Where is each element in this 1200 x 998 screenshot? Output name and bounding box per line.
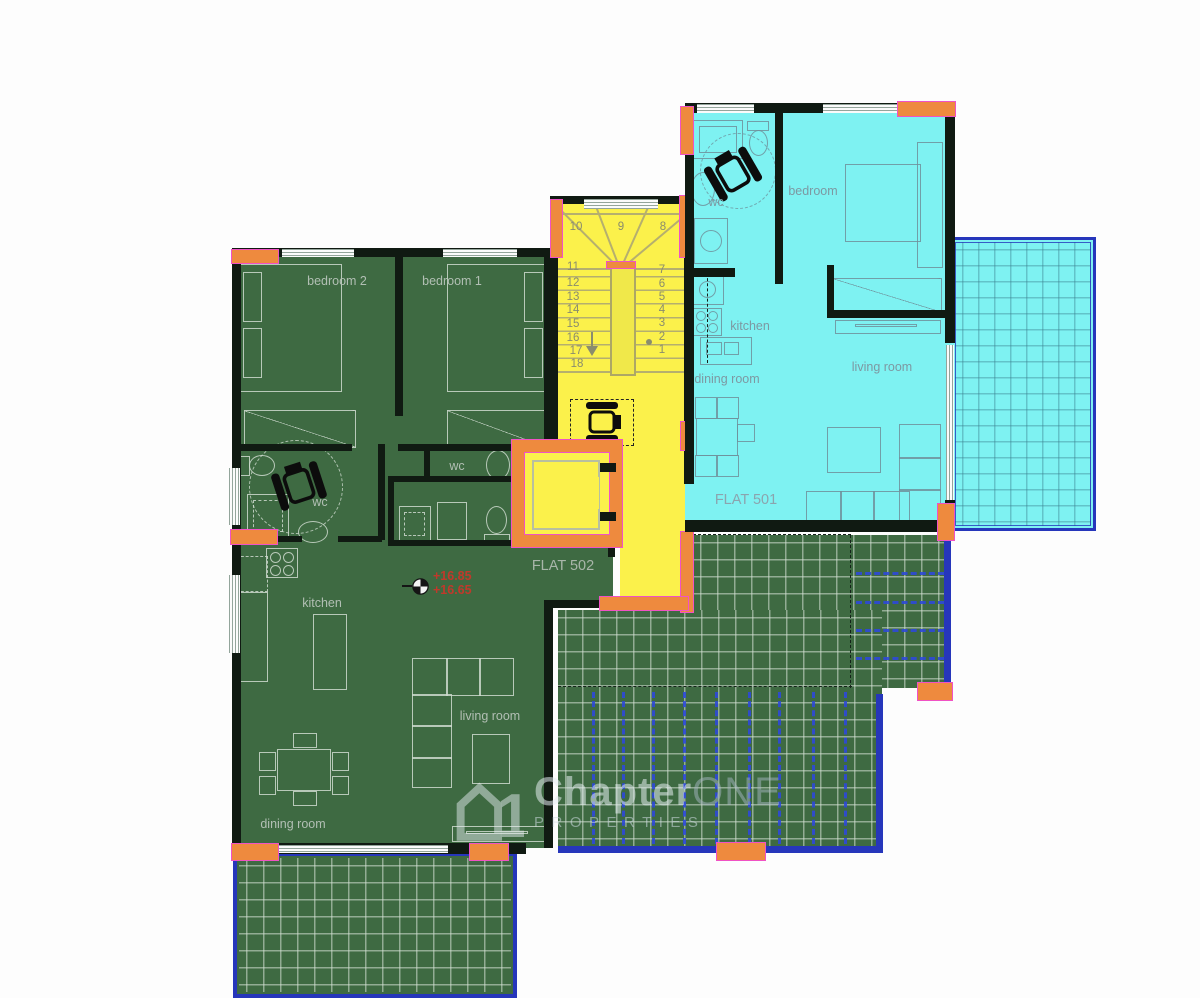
dining-chair	[259, 752, 276, 771]
room-label-bedroom2: bedroom 2	[307, 274, 367, 288]
stair-step-number: 5	[659, 291, 665, 303]
stair-step-number: 1	[659, 344, 665, 356]
closet	[833, 278, 942, 313]
stair-step-number: 2	[659, 331, 665, 343]
sofa-divider	[412, 725, 452, 727]
stair-step-number: 18	[571, 358, 584, 370]
bench	[835, 320, 941, 334]
shower-tray-inner	[404, 512, 425, 536]
dining-chair	[332, 752, 349, 771]
wall	[338, 536, 382, 542]
bed	[845, 164, 921, 242]
stair-step-number: 17	[570, 345, 583, 357]
core-lobby-area	[620, 443, 688, 605]
wall	[608, 547, 615, 557]
stair-step-number: 15	[567, 318, 580, 330]
bed-headboard	[917, 142, 943, 268]
wall	[232, 444, 352, 451]
room-label-kitchen-501: kitchen	[730, 319, 770, 333]
terrace-divider-dashed	[693, 534, 851, 535]
wall-accent-orange	[232, 844, 278, 860]
sofa-divider	[479, 658, 481, 696]
burner	[283, 552, 294, 563]
bed-pillow	[243, 272, 262, 322]
svg-text:1: 1	[497, 782, 524, 844]
watermark-brand-second: ONE	[692, 770, 782, 814]
stair-step-number: 16	[567, 332, 580, 344]
dining-table	[696, 418, 738, 456]
terrace-divider-dashed	[850, 535, 851, 688]
burner	[708, 323, 718, 333]
kitchen-partition-dashed	[707, 273, 708, 363]
wall	[232, 248, 241, 848]
wall	[398, 444, 511, 451]
terrace-tiles	[955, 242, 1091, 526]
dining-chair	[293, 733, 317, 748]
stair-step-number: 7	[659, 264, 665, 276]
sofa-divider	[412, 757, 452, 759]
pergola-line	[856, 657, 944, 660]
bed-pillow	[524, 272, 543, 322]
floor-plan: wc bedroom kitchen dining room living ro…	[0, 0, 1200, 998]
sink-bowl	[724, 342, 739, 355]
burner	[270, 552, 281, 563]
room-label-living-502: living room	[460, 709, 520, 723]
kitchen-island	[313, 614, 347, 690]
wall-accent-orange	[232, 250, 278, 263]
stair-step-number: 13	[567, 291, 580, 303]
wall-accent-orange	[938, 504, 954, 540]
window	[443, 249, 517, 257]
bed-pillow	[243, 328, 262, 378]
sofa-divider	[899, 489, 941, 491]
room-label-dining-501: dining room	[694, 372, 759, 386]
elevator-door-gap	[594, 477, 599, 509]
stair-railing	[610, 266, 636, 376]
sofa	[412, 658, 514, 696]
room-label-wc-502: wc	[312, 495, 327, 509]
room-label-bedroom-501: bedroom	[788, 184, 837, 198]
flat502-label: FLAT 502	[532, 558, 594, 574]
watermark-logo-icon: 1	[452, 772, 524, 844]
dining-chair	[332, 776, 349, 795]
wall	[378, 444, 385, 540]
dining-chair	[293, 791, 317, 806]
burner	[696, 323, 706, 333]
window	[697, 104, 754, 113]
dining-chair	[259, 776, 276, 795]
stair-line	[558, 213, 686, 215]
wall-accent-orange	[918, 683, 952, 700]
pergola-line	[856, 572, 944, 575]
room-label-wc-small-502: wc	[449, 459, 464, 473]
pergola-line	[856, 629, 944, 632]
elevator-car	[532, 460, 600, 530]
toilet-bowl	[486, 506, 507, 534]
burner	[270, 565, 281, 576]
level-value-lower: +16.65	[433, 583, 472, 597]
wall	[424, 444, 430, 480]
level-marker-icon	[412, 578, 429, 595]
stair-step-number: 9	[618, 221, 624, 233]
dining-chair	[717, 397, 739, 419]
pergola-line	[856, 601, 944, 604]
stair-start-dot	[646, 339, 652, 345]
sliding-window	[277, 845, 448, 853]
stair-railing-cap	[607, 262, 635, 268]
wall-accent-orange	[681, 107, 693, 154]
room-label-bedroom1: bedroom 1	[422, 274, 482, 288]
burner	[696, 311, 706, 321]
wall	[945, 103, 955, 343]
watermark-brand: ChapterONE	[534, 772, 782, 812]
level-value-upper: +16.85	[433, 569, 472, 583]
wall	[687, 268, 735, 277]
watermark-brand-first: Chapter	[534, 770, 692, 814]
dining-chair	[737, 424, 755, 442]
terrace-tiles	[239, 858, 511, 992]
sofa	[412, 694, 452, 788]
wall	[685, 103, 694, 484]
room-label-kitchen-502: kitchen	[302, 596, 342, 610]
stair-step-number: 8	[660, 221, 666, 233]
stair-step-number: 10	[570, 221, 583, 233]
bath-cabinet	[437, 502, 467, 540]
wall-accent-orange	[551, 200, 562, 257]
window	[229, 468, 240, 525]
dining-chair	[695, 455, 717, 477]
coffee-table	[827, 427, 881, 473]
elevator-jamb	[600, 463, 616, 472]
sofa-divider	[899, 457, 941, 459]
level-marker-tick	[402, 585, 412, 587]
window	[823, 104, 899, 113]
wall	[685, 520, 955, 532]
bench-line	[855, 324, 917, 327]
room-label-dining-502: dining room	[260, 817, 325, 831]
window	[229, 575, 240, 653]
terrace-flat501	[950, 237, 1096, 531]
dining-chair	[717, 455, 739, 477]
bed-pillow	[524, 328, 543, 378]
sink-bowl	[706, 342, 722, 355]
wall	[827, 310, 949, 318]
wall	[395, 248, 403, 416]
room-label-living-501: living room	[852, 360, 912, 374]
sofa-divider	[446, 658, 448, 696]
wall	[388, 476, 520, 482]
stair-direction-arrow	[586, 346, 598, 356]
sofa	[899, 424, 941, 524]
elevator-jamb	[600, 512, 616, 521]
watermark: 1 ChapterONE PROPERTIES	[452, 772, 782, 852]
flat501-label: FLAT 501	[715, 492, 777, 508]
stair-step-number: 6	[659, 278, 665, 290]
terrace-divider-dashed	[558, 686, 852, 687]
watermark-subtitle: PROPERTIES	[534, 814, 782, 831]
pergola-line	[844, 692, 847, 844]
wall-accent-orange	[600, 597, 688, 610]
stair-direction-stem	[591, 332, 593, 346]
wall-accent-orange	[231, 530, 277, 544]
dining-table	[277, 749, 331, 791]
wheelchair-icon	[582, 398, 622, 446]
terrace-border	[944, 535, 951, 687]
sliding-door	[946, 345, 954, 501]
washing-machine-drum	[700, 230, 722, 252]
terrace-border	[876, 694, 883, 851]
stair-step-number: 11	[567, 261, 579, 273]
room-label-wc-501: wc	[708, 195, 723, 209]
dining-chair	[695, 397, 717, 419]
stair-step-number: 4	[659, 304, 665, 316]
window	[282, 249, 354, 257]
stair-step-number: 14	[567, 304, 580, 316]
wall	[388, 482, 394, 544]
wall	[388, 540, 516, 546]
pergola-line	[812, 692, 815, 844]
burner	[708, 311, 718, 321]
burner	[283, 565, 294, 576]
wall-accent-orange	[898, 102, 955, 116]
wall	[827, 265, 834, 318]
stair-step-number: 12	[567, 277, 580, 289]
stair-step-number: 3	[659, 317, 665, 329]
terrace-bottom-left	[233, 852, 517, 998]
window	[584, 199, 658, 209]
wall	[775, 112, 783, 284]
